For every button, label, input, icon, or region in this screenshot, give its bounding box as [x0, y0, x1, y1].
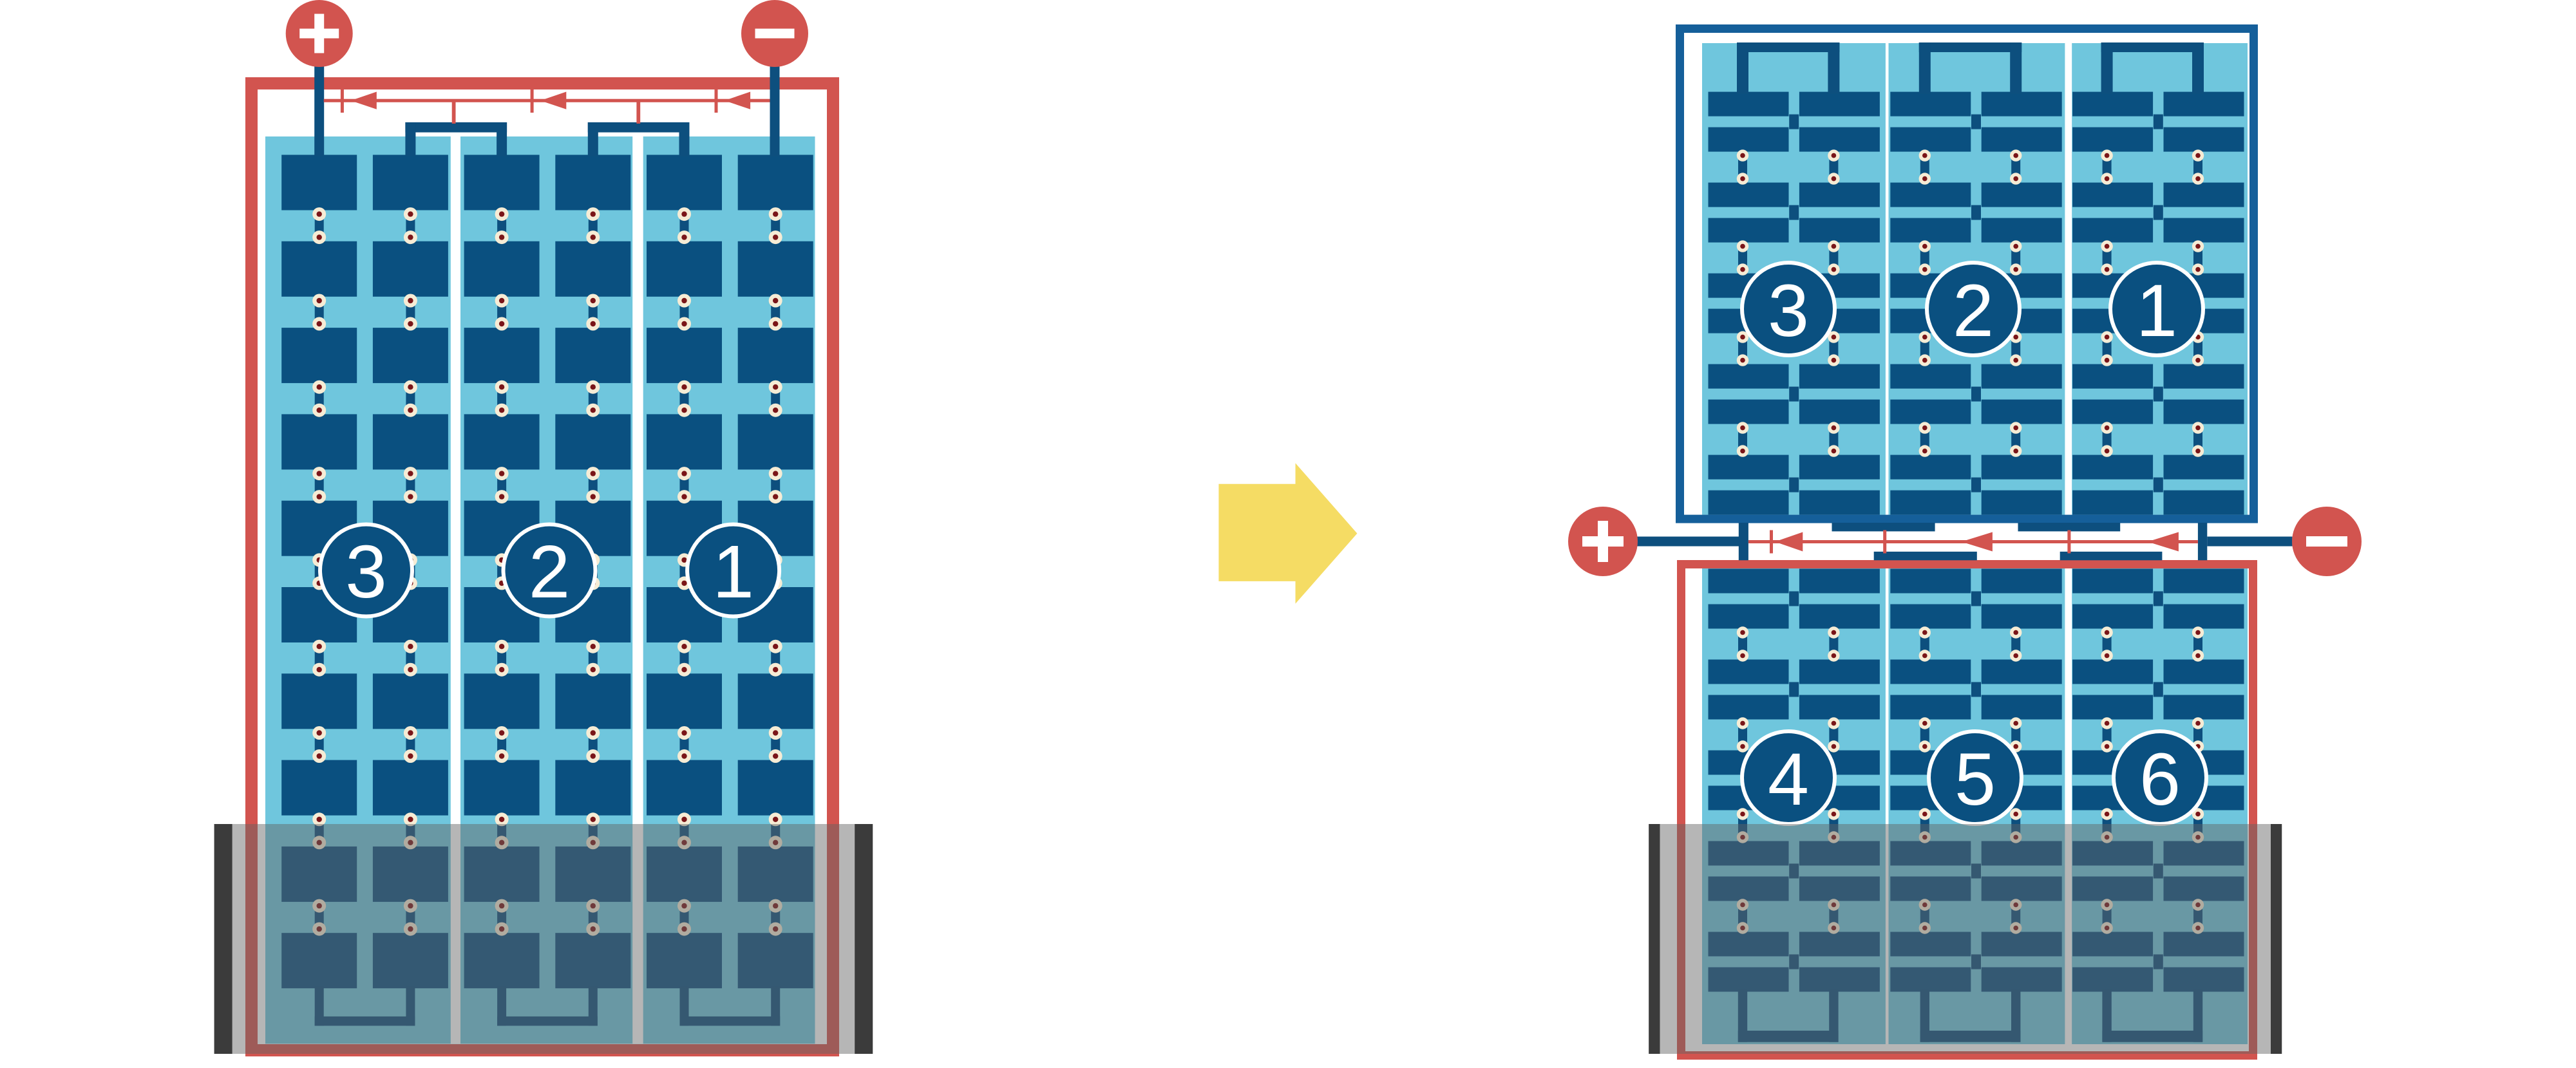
svg-text:4: 4 [1768, 738, 1809, 821]
svg-text:2: 2 [529, 530, 571, 614]
svg-text:3: 3 [1768, 270, 1809, 352]
svg-text:2: 2 [1953, 270, 1994, 352]
svg-text:6: 6 [2139, 738, 2181, 821]
svg-text:1: 1 [2136, 270, 2177, 352]
svg-text:3: 3 [345, 530, 387, 614]
svg-text:5: 5 [1955, 738, 1996, 821]
svg-text:1: 1 [712, 530, 754, 614]
